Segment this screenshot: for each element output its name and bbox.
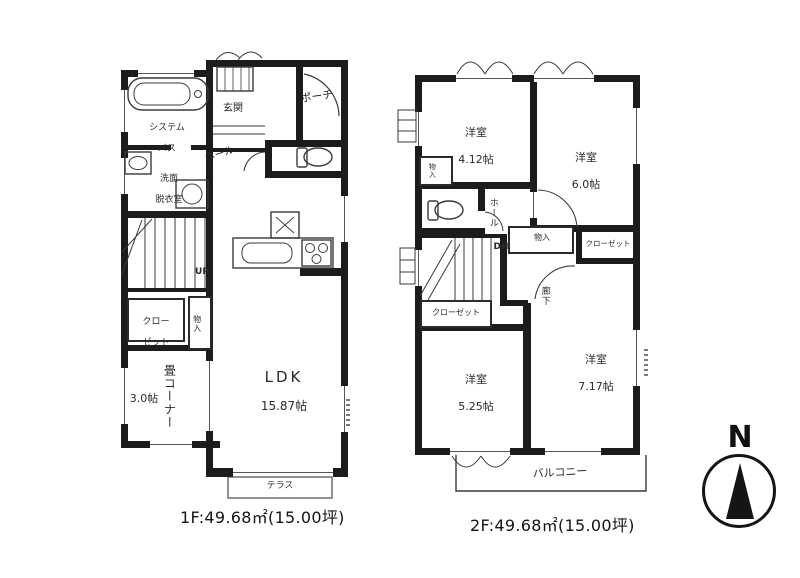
shoe-cabinet-icon [217,67,253,91]
ldk-size: 15.87帖 [261,399,307,413]
bath-size: バス [158,144,176,154]
stairs-down-icon [420,238,491,302]
bath-label: システム バス [136,112,198,155]
ldk-label: LDK 15.87帖 [236,355,332,414]
compass-north-label: N [720,420,760,455]
stairs-down-label: DN [489,242,513,253]
floorplan-canvas: システム バス 洗面 脱衣室 玄関 ホール ポーチ UP クロー ゼット 物入 … [0,0,800,578]
refrigerator-icon [271,212,299,238]
window-arc [452,456,510,467]
closet-top-label: クローゼット [580,239,636,248]
corridor-label: 廊下 [539,270,550,322]
room-ne-label: 洋室 6.0帖 [550,138,622,191]
storage-label: 物入 [192,302,202,346]
canopy-arc [216,52,262,60]
bathtub-icon [128,78,208,110]
room-nw-label: 洋室 4.12帖 [440,113,512,166]
entrance-step-line [213,126,265,134]
terrace-label: テラス [250,481,310,492]
door-arc [538,190,577,227]
room-se-label: 洋室 7.17帖 [560,340,632,393]
room-sw-label: 洋室 5.25帖 [440,360,512,413]
floor1-caption: 1F:49.68㎡(15.00坪) [180,504,345,528]
ldk-name: LDK [265,368,304,386]
fixtures-overlay [0,0,800,578]
toilet-icon [428,201,463,220]
washroom-label: 洗面 脱衣室 [138,163,200,206]
storage-mid-label: 物入 [522,233,562,243]
closet-bottom-label: クローゼット [424,308,488,318]
floor2-caption: 2F:49.68㎡(15.00坪) [470,512,635,536]
closet-label: クロー ゼット [129,306,183,349]
tatami-name: 畳コーナー [162,350,176,442]
toilet-icon [297,148,332,167]
stairs-up-label: UP [190,267,214,278]
north-arrow-icon [726,463,754,519]
exterior-unit-icon [398,110,416,284]
tatami-size: 3.0帖 [128,392,160,405]
window-arc [457,62,593,74]
bath-name: システム [149,123,185,133]
hall-label: ホール [487,194,498,232]
entrance-label: 玄関 [216,103,250,115]
door-arc [244,152,265,171]
storage-left-label: 物入 [428,158,436,184]
stove-icon [302,240,331,266]
